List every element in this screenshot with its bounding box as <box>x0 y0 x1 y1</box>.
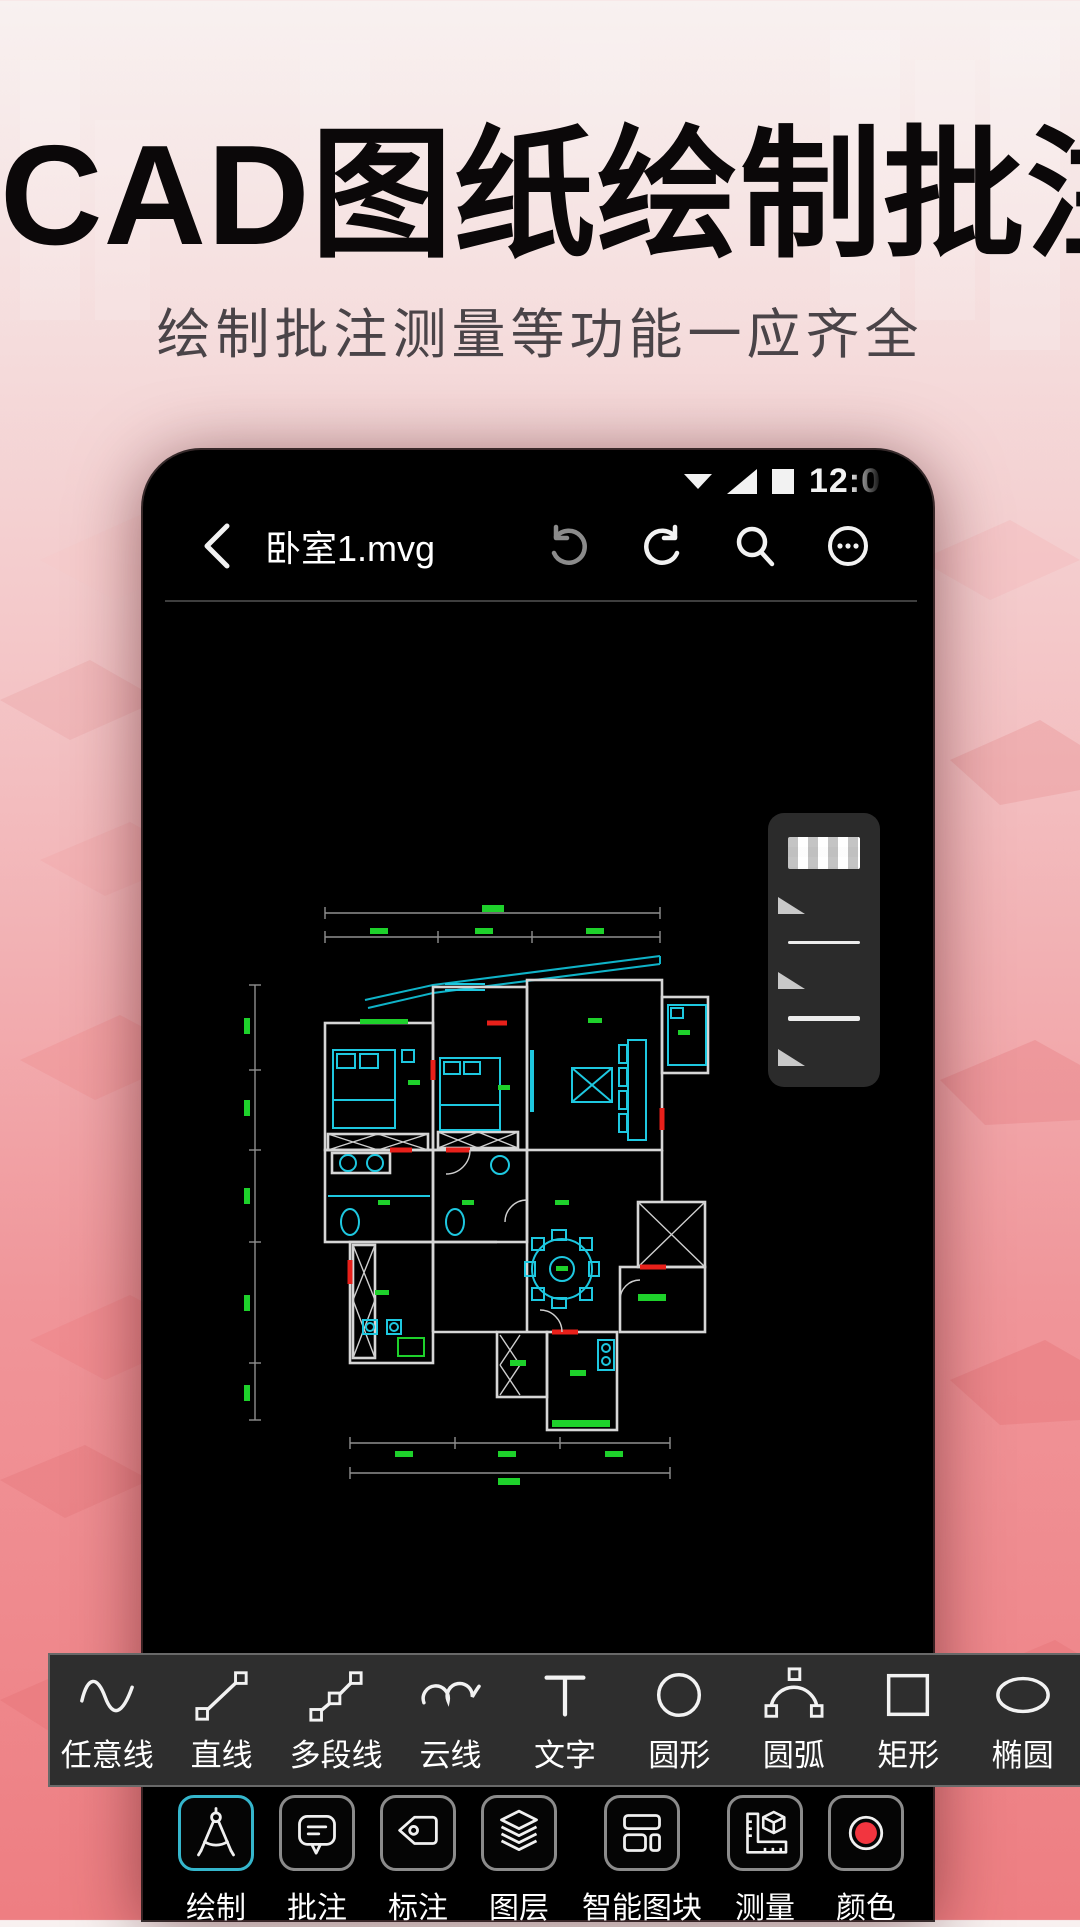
top-bar-actions <box>546 523 871 569</box>
tool-text[interactable]: 文字 <box>508 1655 622 1785</box>
text-icon <box>534 1666 596 1724</box>
top-bar-divider <box>165 600 917 602</box>
mode-color[interactable]: 颜色 <box>828 1795 904 1927</box>
status-bar: 12:0 <box>684 462 881 501</box>
color-icon <box>838 1805 894 1861</box>
draw-tools-toolbar: 任意线 直线 多段线 云线 文字 圆形 <box>48 1653 1080 1787</box>
thin-line-option[interactable] <box>788 941 860 944</box>
corner-triangle-icon[interactable] <box>778 897 805 914</box>
medium-line-option[interactable] <box>788 1016 860 1021</box>
page-title: CAD图纸绘制批注 <box>0 118 1080 274</box>
tool-ellipse[interactable]: 椭圆 <box>966 1655 1080 1785</box>
mode-annotate[interactable]: 批注 <box>279 1795 355 1927</box>
tool-label: 圆弧 <box>763 1730 825 1775</box>
mode-label: 测量 <box>735 1883 795 1927</box>
dimension-lines <box>249 907 670 1479</box>
mode-label: 批注 <box>287 1883 347 1927</box>
tool-label: 椭圆 <box>992 1730 1054 1775</box>
compass-icon <box>188 1805 244 1861</box>
mode-label: 颜色 <box>836 1883 896 1927</box>
tool-label: 云线 <box>420 1730 482 1775</box>
signal-icon <box>727 469 757 494</box>
mode-label: 智能图块 <box>582 1883 702 1927</box>
tool-rectangle[interactable]: 矩形 <box>851 1655 965 1785</box>
cad-floor-plan-canvas[interactable] <box>200 900 710 1490</box>
search-icon[interactable] <box>732 523 778 569</box>
arc-icon <box>763 1666 825 1724</box>
comment-icon <box>289 1805 345 1861</box>
back-icon[interactable] <box>199 520 235 572</box>
app-top-bar: 卧室1.mvg <box>143 505 933 587</box>
mode-label: 绘制 <box>186 1883 246 1927</box>
battery-icon <box>772 469 794 494</box>
undo-icon[interactable] <box>546 523 592 569</box>
status-time: 12:0 <box>809 462 881 501</box>
file-name: 卧室1.mvg <box>265 520 435 572</box>
polyline-icon <box>305 1666 367 1724</box>
mode-smart-blocks[interactable]: 智能图块 <box>582 1795 702 1927</box>
tool-arc[interactable]: 圆弧 <box>737 1655 851 1785</box>
green-labels <box>360 1018 690 1427</box>
mode-toolbar: 绘制 批注 标注 <box>178 1795 904 1927</box>
mode-label: 图层 <box>489 1883 549 1927</box>
tool-label: 文字 <box>534 1730 596 1775</box>
tool-polyline[interactable]: 多段线 <box>279 1655 393 1785</box>
mode-label: 标注 <box>388 1883 448 1927</box>
tool-label: 圆形 <box>648 1730 710 1775</box>
straight-line-icon <box>191 1666 253 1724</box>
freehand-line-icon <box>76 1666 138 1724</box>
tool-label: 任意线 <box>61 1730 154 1775</box>
redo-icon[interactable] <box>639 523 685 569</box>
more-icon[interactable] <box>825 523 871 569</box>
smart-blocks-icon <box>614 1805 670 1861</box>
measure-icon <box>737 1805 793 1861</box>
rectangle-icon <box>877 1666 939 1724</box>
ellipse-icon <box>992 1666 1054 1724</box>
layers-icon <box>491 1805 547 1861</box>
hero-section: CAD图纸绘制批注 绘制批注测量等功能一应齐全 <box>0 0 1080 369</box>
mode-measure[interactable]: 测量 <box>727 1795 803 1927</box>
balcony-glazing <box>365 956 660 1008</box>
line-style-panel <box>768 813 880 1087</box>
caret-down-icon <box>684 474 712 489</box>
cloud-line-icon <box>420 1666 482 1724</box>
tool-freehand-line[interactable]: 任意线 <box>50 1655 164 1785</box>
mode-dimension[interactable]: 标注 <box>380 1795 456 1927</box>
tool-label: 多段线 <box>290 1730 383 1775</box>
tool-circle[interactable]: 圆形 <box>622 1655 736 1785</box>
corner-triangle-icon[interactable] <box>778 1049 805 1066</box>
mode-draw[interactable]: 绘制 <box>178 1795 254 1927</box>
tag-icon <box>390 1805 446 1861</box>
circle-icon <box>648 1666 710 1724</box>
page-subtitle: 绘制批注测量等功能一应齐全 <box>0 290 1080 369</box>
furniture <box>328 984 706 1370</box>
tool-cloud-line[interactable]: 云线 <box>393 1655 507 1785</box>
corner-triangle-icon[interactable] <box>778 972 805 989</box>
hatch-marks <box>328 1132 705 1395</box>
mode-layers[interactable]: 图层 <box>481 1795 557 1927</box>
tool-label: 矩形 <box>877 1730 939 1775</box>
tool-label: 直线 <box>191 1730 253 1775</box>
tool-straight-line[interactable]: 直线 <box>164 1655 278 1785</box>
transparency-swatch[interactable] <box>788 837 860 869</box>
